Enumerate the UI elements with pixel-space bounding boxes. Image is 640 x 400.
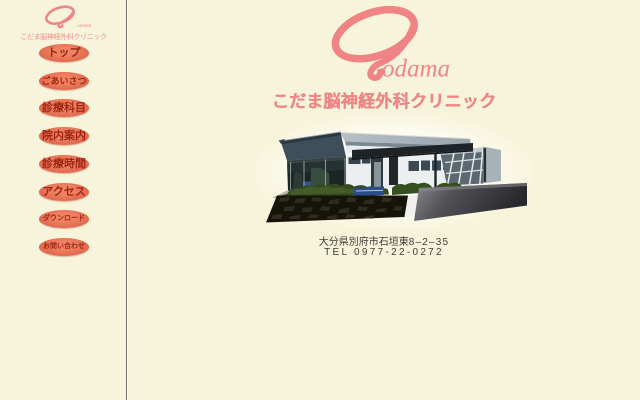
svg-text:odama: odama [77, 24, 91, 29]
svg-text:odama: odama [382, 56, 450, 83]
